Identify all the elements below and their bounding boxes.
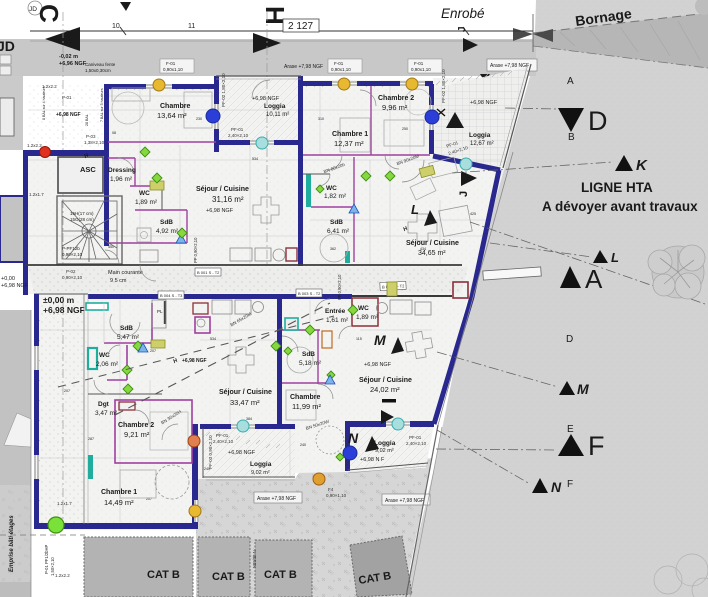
svg-text:LIGNE HTA: LIGNE HTA (581, 180, 653, 195)
svg-text:115: 115 (356, 337, 362, 341)
svg-text:M: M (374, 332, 386, 348)
svg-text:SdB: SdB (120, 325, 133, 332)
svg-text:Séjour / Cuisine: Séjour / Cuisine (219, 389, 272, 396)
svg-text:230: 230 (196, 117, 202, 121)
svg-text:207: 207 (150, 349, 156, 353)
svg-text:Séjour / Cuisine: Séjour / Cuisine (196, 186, 249, 193)
svg-text:CAT B: CAT B (147, 569, 180, 581)
svg-text:11: 11 (188, 23, 195, 30)
svg-text:1,50x0,30cm: 1,50x0,30cm (85, 68, 111, 73)
svg-text:D: D (566, 334, 573, 345)
svg-text:Enrobé: Enrobé (441, 6, 485, 21)
svg-text:1.2x2.2: 1.2x2.2 (55, 573, 70, 578)
svg-text:534: 534 (252, 157, 258, 161)
svg-text:Chambre: Chambre (160, 103, 190, 110)
svg-text:362: 362 (330, 247, 336, 251)
svg-text:15G(28 cm): 15G(28 cm) (70, 217, 94, 222)
svg-text:31,16 m²: 31,16 m² (212, 195, 244, 204)
svg-text:Dressing: Dressing (108, 167, 136, 174)
svg-text:+6,98 NGF: +6,98 NGF (1, 283, 29, 289)
svg-text:9,02 m²: 9,02 m² (251, 470, 270, 476)
svg-text:2,40×2,10: 2,40×2,10 (406, 441, 427, 446)
svg-text:N: N (348, 430, 359, 446)
svg-text:0,90x1,10: 0,90x1,10 (163, 67, 183, 72)
svg-text:Chambre 1: Chambre 1 (101, 489, 137, 496)
svg-text:F-01: F-01 (334, 61, 344, 66)
svg-text:Arase +7,98 NGF: Arase +7,98 NGF (284, 64, 323, 70)
svg-text:N: N (551, 479, 562, 495)
svg-text:0,90×2,10: 0,90×2,10 (62, 275, 83, 280)
svg-text:+6,98 NGF: +6,98 NGF (470, 100, 498, 106)
svg-text:F-01: F-01 (414, 61, 424, 66)
svg-text:SdB: SdB (330, 219, 343, 226)
svg-text:WC: WC (139, 190, 150, 197)
svg-text:+0,00: +0,00 (1, 276, 15, 282)
svg-text:Main courante: Main courante (108, 270, 143, 276)
svg-text:1,89 m²: 1,89 m² (135, 199, 158, 206)
svg-text:N09/08 N: N09/08 N (252, 550, 257, 568)
svg-text:Chambre 1: Chambre 1 (332, 131, 368, 138)
svg-text:4,92 m²: 4,92 m² (156, 228, 179, 235)
svg-text:ASC: ASC (80, 165, 96, 174)
svg-text:Loggia: Loggia (250, 461, 272, 468)
svg-text:9 5 cm: 9 5 cm (110, 278, 127, 284)
svg-text:384: 384 (246, 417, 252, 421)
svg-text:L: L (611, 250, 619, 265)
svg-text:PP 0,90×2,10: PP 0,90×2,10 (193, 237, 198, 263)
svg-text:0,90×1,10: 0,90×1,10 (326, 493, 347, 498)
svg-text:2,40×2,10: 2,40×2,10 (228, 133, 249, 138)
svg-text:Chambre 2: Chambre 2 (378, 95, 414, 102)
svg-text:J: J (458, 191, 470, 197)
svg-text:16H(17 cm): 16H(17 cm) (70, 211, 94, 216)
svg-text:+6,98 NGF: +6,98 NGF (228, 450, 256, 456)
svg-text:P-03: P-03 (86, 134, 96, 139)
svg-text:PF-03 0,90×2,10: PF-03 0,90×2,10 (208, 435, 213, 469)
svg-text:K: K (636, 157, 648, 174)
svg-text:PF-02 1,80×2,10: PF-02 1,80×2,10 (441, 69, 446, 103)
svg-text:9,21 m²: 9,21 m² (124, 430, 150, 439)
svg-text:1,38×2,10: 1,38×2,10 (84, 140, 105, 145)
svg-text:34,65 m²: 34,65 m² (418, 250, 446, 257)
svg-text:CAT B: CAT B (264, 569, 297, 581)
svg-text:11,99 m²: 11,99 m² (292, 402, 322, 411)
svg-text:A dévoyer avant travaux: A dévoyer avant travaux (542, 199, 698, 214)
svg-text:1.2x1.7: 1.2x1.7 (29, 192, 44, 197)
svg-text:534: 534 (210, 337, 216, 341)
svg-text:10,11 m²: 10,11 m² (266, 112, 289, 118)
svg-text:WC: WC (326, 185, 337, 192)
svg-text:12,37 m²: 12,37 m² (334, 139, 364, 148)
svg-text:310: 310 (318, 117, 324, 121)
svg-text:F: F (567, 479, 573, 490)
svg-text:Emprise bâti étages: Emprise bâti étages (9, 515, 15, 572)
svg-text:3,47 m²: 3,47 m² (95, 410, 118, 417)
svg-text:1,50×2,10: 1,50×2,10 (50, 557, 55, 576)
svg-text:Séjour / Cuisine: Séjour / Cuisine (359, 377, 412, 384)
svg-text:425: 425 (470, 212, 476, 216)
svg-text:1,61 m²: 1,61 m² (326, 317, 349, 324)
svg-text:8 BAL sur 4 hauteurs: 8 BAL sur 4 hauteurs (42, 86, 46, 120)
svg-text:1,89 m²: 1,89 m² (356, 314, 379, 321)
svg-text:D: D (588, 106, 608, 136)
svg-text:E: E (567, 424, 574, 435)
svg-text:J: J (457, 26, 468, 32)
svg-text:Loggia: Loggia (264, 103, 286, 110)
svg-text:08: 08 (112, 131, 116, 135)
svg-text:PF-01: PF-01 (409, 435, 422, 440)
svg-text:PP 0,90×2,10: PP 0,90×2,10 (337, 274, 342, 300)
svg-text:240: 240 (300, 443, 306, 447)
svg-text:B 001 S - T2: B 001 S - T2 (197, 270, 220, 275)
svg-text:B 003 S - T2: B 003 S - T2 (298, 291, 321, 296)
svg-text:Arase +7,98 NGF: Arase +7,98 NGF (385, 498, 424, 504)
svg-text:P-01: P-01 (62, 95, 72, 100)
svg-text:9,96 m²: 9,96 m² (382, 103, 408, 112)
svg-text:P-02: P-02 (66, 269, 76, 274)
svg-text:1.2x1.7: 1.2x1.7 (57, 501, 72, 506)
svg-text:PF-01: PF-01 (216, 433, 229, 438)
svg-text:24,02 m²: 24,02 m² (370, 385, 400, 394)
svg-text:5,18 m²: 5,18 m² (299, 360, 322, 367)
svg-text:Loggia: Loggia (469, 132, 491, 139)
svg-text:2 127: 2 127 (288, 21, 313, 32)
svg-text:B 004 S - T3: B 004 S - T3 (160, 293, 183, 298)
svg-text:+6,98 NGF: +6,98 NGF (182, 358, 207, 364)
svg-text:13,64 m²: 13,64 m² (157, 111, 187, 120)
svg-text:SdB: SdB (160, 219, 173, 226)
svg-text:CAT B: CAT B (212, 571, 245, 583)
svg-text:+6,98 NGF: +6,98 NGF (56, 112, 81, 118)
svg-text:5,47 m²: 5,47 m² (117, 334, 140, 341)
svg-text:1.2x2.2: 1.2x2.2 (27, 143, 42, 148)
svg-text:6,41 m²: 6,41 m² (327, 228, 350, 235)
svg-text:L: L (411, 202, 419, 217)
svg-text:Arase +7,98 NGF: Arase +7,98 NGF (257, 496, 296, 502)
svg-text:M: M (577, 381, 589, 397)
svg-text:Caniveau fente: Caniveau fente (85, 62, 116, 67)
svg-text:F: F (588, 431, 605, 461)
svg-text:PF-01: PF-01 (231, 127, 244, 132)
svg-text:F-01: F-01 (166, 61, 176, 66)
svg-text:WC: WC (358, 305, 369, 312)
svg-text:+6,98 N F: +6,98 N F (360, 457, 385, 463)
svg-text:Séjour / Cuisine: Séjour / Cuisine (406, 240, 459, 247)
svg-text:+6,98 NGF: +6,98 NGF (364, 362, 392, 368)
svg-text:14,49 m²: 14,49 m² (104, 498, 134, 507)
svg-text:PF-02 1,80×2,10: PF-02 1,80×2,10 (221, 73, 226, 107)
svg-text:A: A (585, 264, 603, 294)
svg-text:+6,96 NGF: +6,96 NGF (59, 61, 87, 67)
svg-text:B: B (568, 132, 575, 143)
svg-text:Entrée: Entrée (325, 308, 346, 315)
svg-text:Chambre: Chambre (290, 394, 320, 401)
svg-text:+6,98 NGF: +6,98 NGF (206, 208, 234, 214)
svg-text:2,06 m²: 2,06 m² (96, 361, 119, 368)
svg-text:28 BAL: 28 BAL (85, 114, 89, 126)
svg-text:12,67 m²: 12,67 m² (470, 141, 494, 147)
svg-text:287: 287 (88, 437, 94, 441)
svg-text:7 BAL sur 5 hauteurs: 7 BAL sur 5 hauteurs (100, 88, 104, 122)
svg-text:C: C (34, 4, 64, 23)
svg-text:P-01 PF1/2bHP: P-01 PF1/2bHP (44, 544, 49, 574)
svg-text:A: A (567, 76, 574, 87)
svg-text:10: 10 (112, 23, 120, 30)
svg-text:1,82 m²: 1,82 m² (324, 193, 347, 200)
svg-text:JD: JD (0, 38, 15, 54)
svg-text:F4: F4 (328, 487, 334, 492)
svg-text:-0,02 m: -0,02 m (59, 54, 78, 60)
svg-text:P-PF12b: P-PF12b (62, 246, 80, 251)
svg-text:250: 250 (402, 127, 408, 131)
svg-text:+6,98 NGF: +6,98 NGF (252, 96, 280, 102)
svg-text:33,47 m²: 33,47 m² (230, 398, 260, 407)
svg-text:0,90x1,10: 0,90x1,10 (411, 67, 431, 72)
svg-text:0,90×2,10: 0,90×2,10 (62, 252, 83, 257)
svg-text:Dgt: Dgt (98, 401, 110, 408)
svg-text:2,40×2,10: 2,40×2,10 (213, 439, 234, 444)
svg-text:0,90x1,10: 0,90x1,10 (331, 67, 351, 72)
svg-text:PL: PL (157, 309, 163, 314)
svg-text:1,96 m²: 1,96 m² (110, 176, 133, 183)
